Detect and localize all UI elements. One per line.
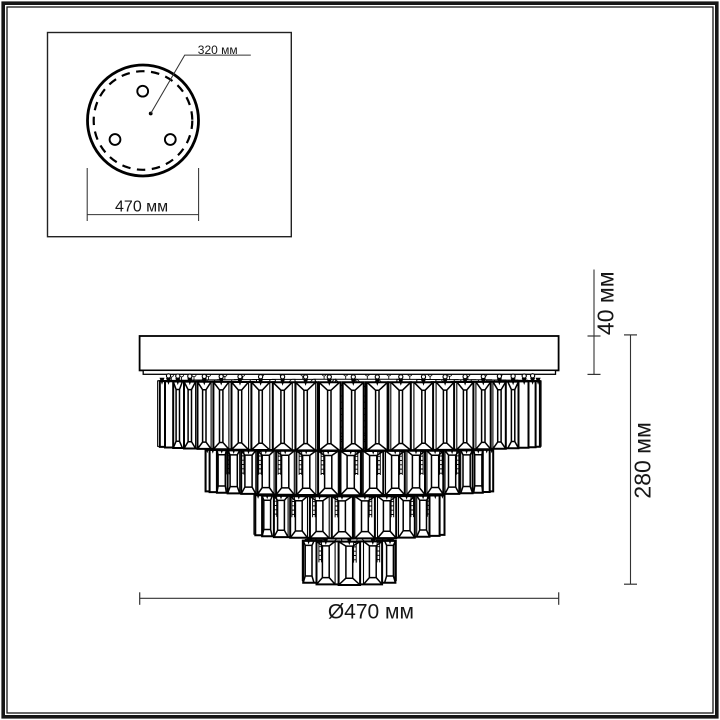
svg-text:470 мм: 470 мм: [115, 199, 168, 216]
svg-text:320 мм: 320 мм: [198, 43, 238, 57]
svg-text:280 мм: 280 мм: [630, 422, 656, 498]
svg-text:Ø470 мм: Ø470 мм: [328, 601, 414, 624]
svg-text:40 мм: 40 мм: [593, 271, 619, 335]
